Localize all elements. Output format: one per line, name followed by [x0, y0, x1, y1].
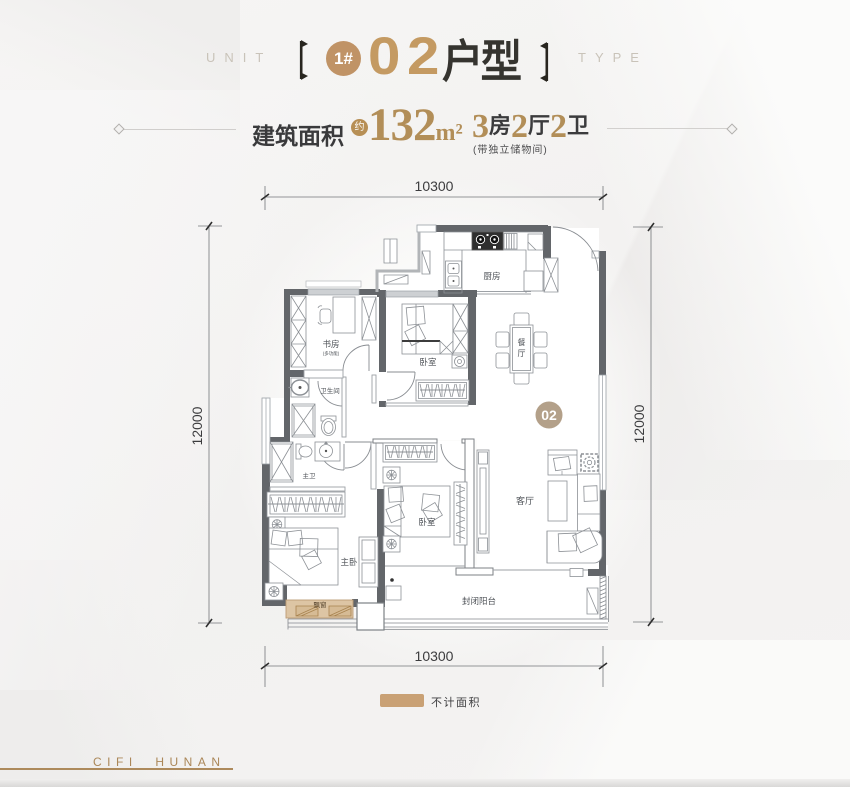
svg-text:封闭阳台: 封闭阳台 [462, 596, 496, 606]
svg-text:10300: 10300 [415, 178, 454, 194]
svg-text:10300: 10300 [415, 648, 454, 664]
svg-text:主卫: 主卫 [303, 471, 317, 480]
svg-text:厨房: 厨房 [483, 271, 500, 281]
svg-text:餐: 餐 [518, 338, 526, 347]
svg-text:12000: 12000 [189, 406, 205, 445]
svg-text:飘窗: 飘窗 [314, 600, 327, 609]
svg-text:厅: 厅 [518, 349, 526, 358]
svg-text:书房: 书房 [322, 339, 339, 349]
svg-text:客厅: 客厅 [516, 495, 534, 506]
svg-text:卧室: 卧室 [419, 357, 437, 367]
svg-text:卫生间: 卫生间 [320, 386, 340, 395]
svg-text:12000: 12000 [631, 404, 647, 443]
svg-text:02: 02 [541, 407, 557, 423]
svg-text:(多功能): (多功能) [323, 350, 340, 357]
svg-text:主卧: 主卧 [340, 557, 358, 567]
svg-text:卧室: 卧室 [418, 517, 436, 527]
